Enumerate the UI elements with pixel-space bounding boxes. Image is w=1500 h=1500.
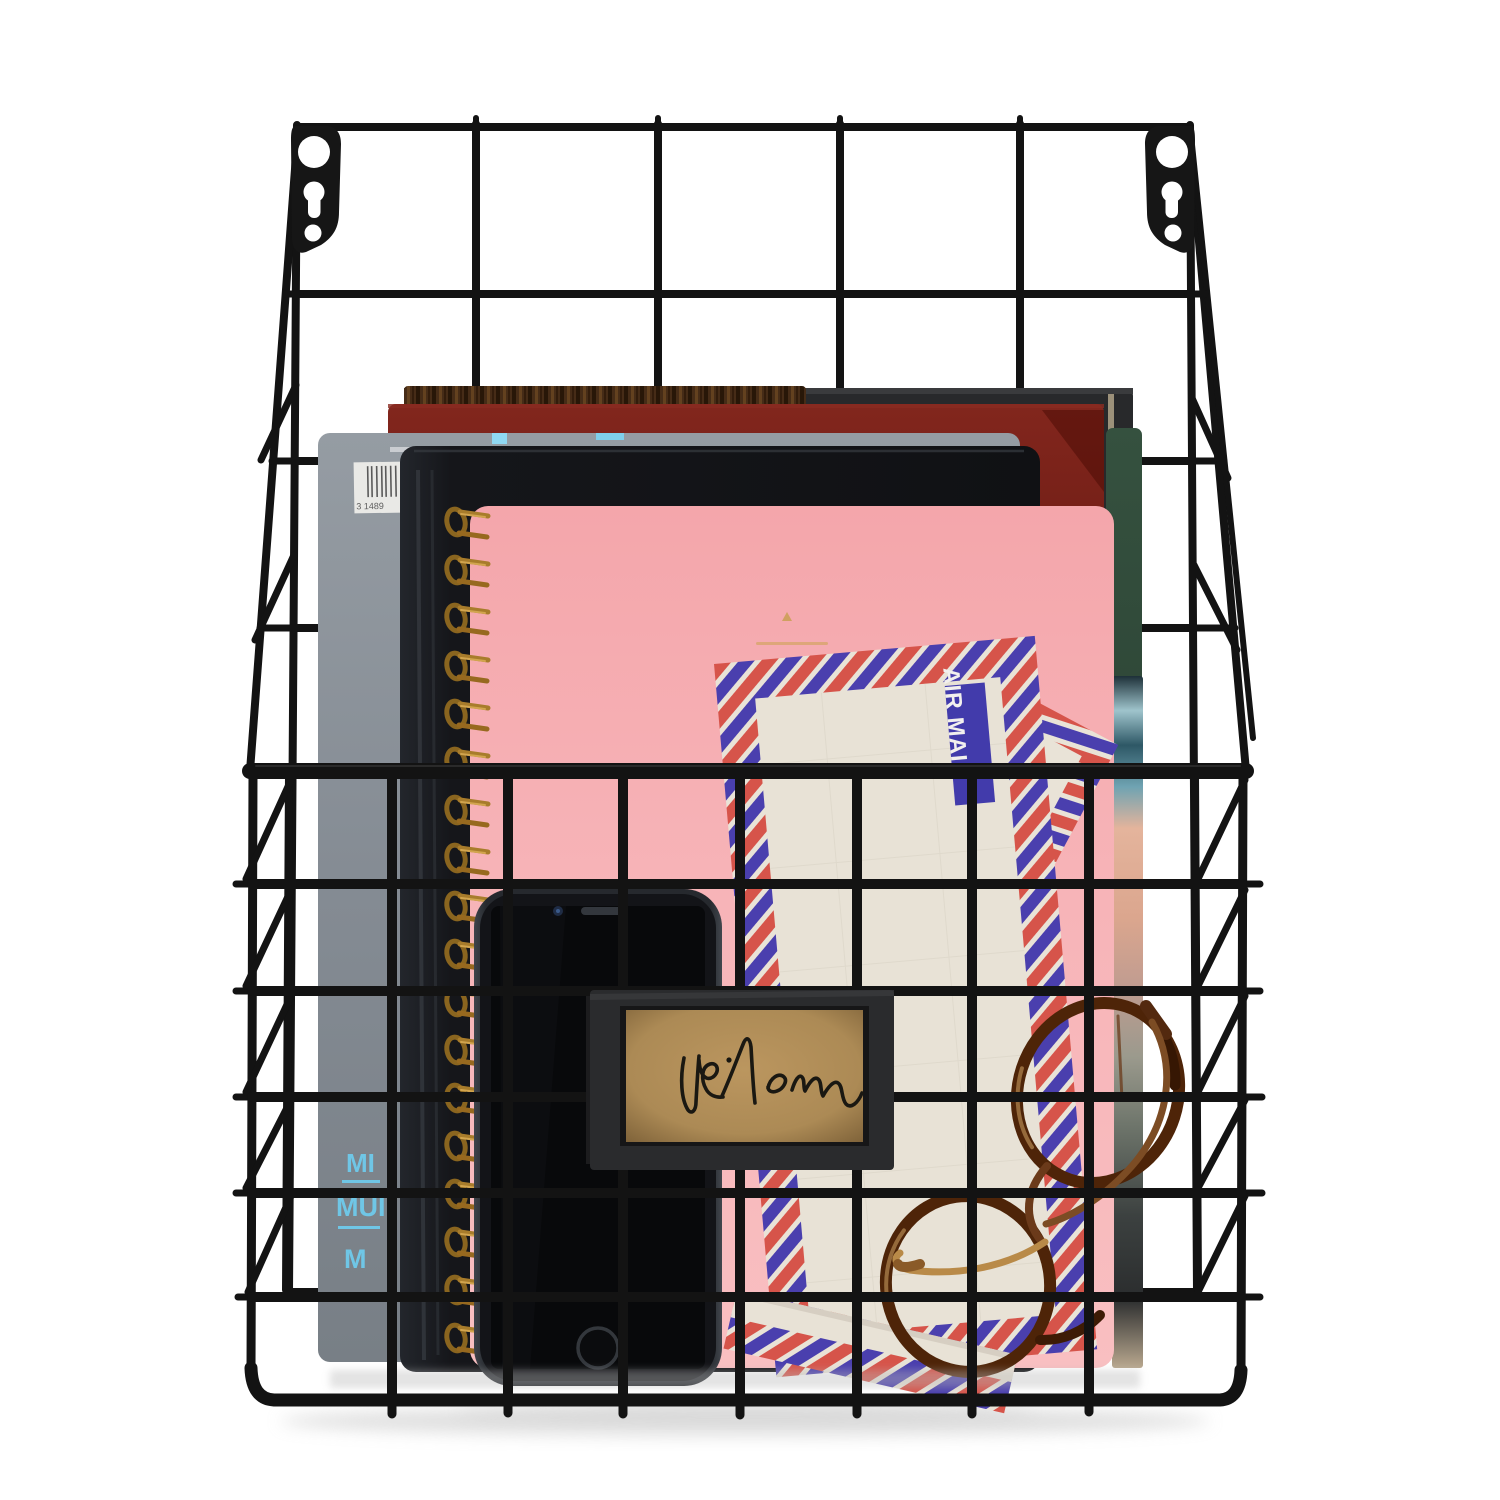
- svg-text:3 1489: 3 1489: [356, 501, 384, 511]
- svg-text:M: M: [344, 1244, 367, 1274]
- svg-text:MI: MI: [346, 1148, 375, 1178]
